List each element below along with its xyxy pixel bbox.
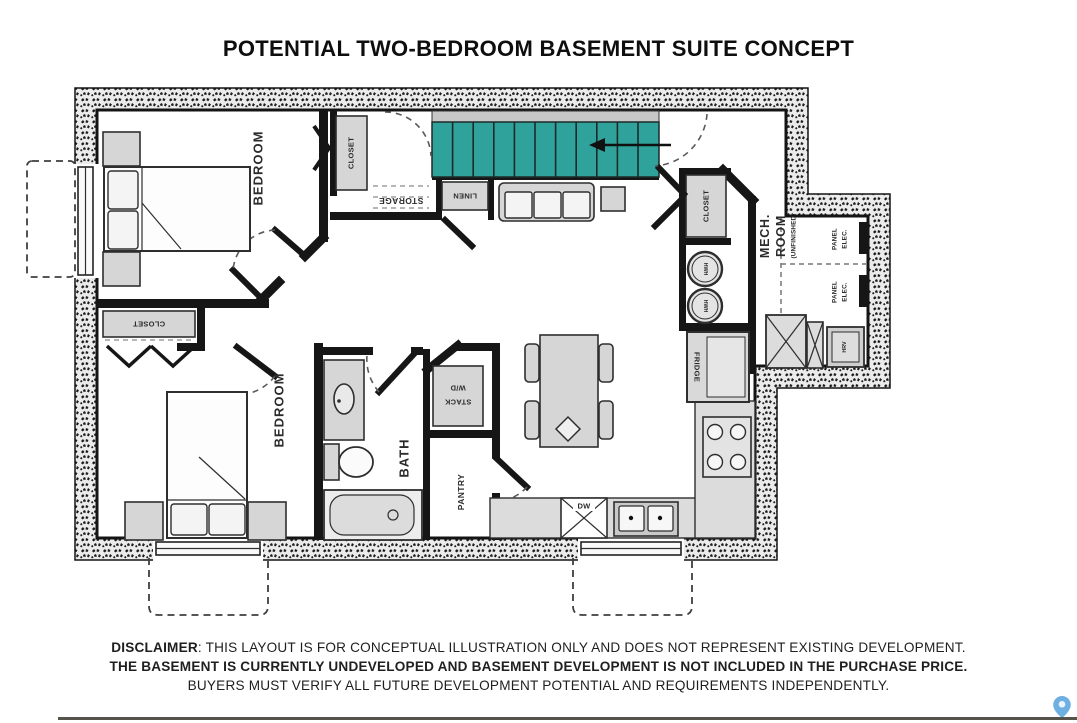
- panel-elec-label-line1: PANEL: [832, 228, 839, 250]
- disclaimer-line1: DISCLAIMER: THIS LAYOUT IS FOR CONCEPTUA…: [0, 640, 1077, 655]
- chair: [525, 344, 539, 382]
- bath-label: BATH: [397, 438, 412, 477]
- chair: [525, 401, 539, 439]
- pillow: [108, 171, 138, 209]
- bedroom1-door-leaf2: [233, 270, 261, 298]
- bedroom1-door-leaf: [275, 230, 305, 256]
- stair-landing-door-arc: [655, 114, 707, 166]
- electrical-panel: [859, 222, 869, 254]
- linen-closet: LINEN: [442, 182, 488, 246]
- closet1-label: CLOSET: [347, 137, 356, 169]
- hrv-label: HRV: [842, 341, 848, 353]
- staircase: [432, 111, 671, 177]
- closet2-label: CLOSET: [133, 320, 165, 329]
- closet-between-bedrooms: CLOSET: [103, 311, 195, 366]
- window-well-left: [27, 161, 75, 277]
- pillow: [209, 504, 245, 535]
- pillow: [171, 504, 207, 535]
- map-pin-icon: [1053, 696, 1071, 718]
- burner: [731, 455, 746, 470]
- chair: [599, 344, 613, 382]
- bath-door-arc: [367, 355, 379, 392]
- storage-label: STORAGE: [379, 196, 424, 206]
- sofa-cushion: [534, 192, 561, 218]
- panel-elec-label-line1: PANEL: [832, 281, 839, 303]
- window-left: [27, 161, 99, 278]
- disclaimer-word: DISCLAIMER: [111, 640, 198, 655]
- living-room-furniture: [499, 183, 625, 221]
- floor-plan: CLOSET STORAGE LINEN CLOSET CLOSET: [0, 78, 1077, 634]
- linen-door-leaf: [445, 220, 472, 246]
- pillow: [108, 211, 138, 249]
- panel-elec-label-line2: ELEC.: [842, 282, 849, 302]
- burner: [708, 455, 723, 470]
- burner: [731, 425, 746, 440]
- stack-wd-label-line1: STACK: [444, 398, 471, 407]
- storage-door-arc: [385, 112, 431, 156]
- nightstand: [103, 132, 140, 166]
- stack-wd-label-line2: W/D: [450, 384, 466, 393]
- closet-mech: CLOSET: [686, 175, 726, 237]
- nightstand: [125, 502, 163, 540]
- window-bedroom2: [149, 536, 268, 615]
- mech-room-door-leaf: [655, 200, 681, 226]
- floor-plan-drawing: CLOSET STORAGE LINEN CLOSET CLOSET: [0, 78, 1077, 634]
- storage-room: STORAGE: [373, 112, 431, 208]
- disclaimer-line3: BUYERS MUST VERIFY ALL FUTURE DEVELOPMEN…: [0, 678, 1077, 693]
- nightstand: [103, 252, 140, 286]
- burner: [708, 425, 723, 440]
- toilet-bowl: [339, 447, 373, 477]
- disclaimer-line2: THE BASEMENT IS CURRENTLY UNDEVELOPED AN…: [0, 659, 1077, 674]
- stack-washer-dryer: W/D STACK: [433, 366, 483, 426]
- disclaimer-line1-text: : THIS LAYOUT IS FOR CONCEPTUAL ILLUSTRA…: [198, 640, 966, 655]
- chair: [599, 401, 613, 439]
- bath-door-leaf: [379, 353, 415, 392]
- pantry-label: PANTRY: [456, 474, 466, 510]
- fridge-label: FRIDGE: [693, 352, 702, 382]
- hwh-label: HWH: [702, 263, 708, 276]
- stair-treads: [432, 122, 659, 177]
- floor-plan-page: { "title": "POTENTIAL TWO-BEDROOM BASEME…: [0, 0, 1077, 720]
- closet2-bifold-left: [107, 346, 151, 366]
- closet3-label: CLOSET: [702, 190, 711, 222]
- mech-room-label-line2: ROOM: [774, 215, 788, 257]
- window-well-kitchen: [573, 558, 692, 615]
- dining-set: [525, 335, 613, 447]
- panel-elec-label-line2: ELEC.: [842, 229, 849, 249]
- hwh-label: HWH: [702, 300, 708, 313]
- bedroom1-label: BEDROOM: [251, 131, 266, 206]
- mech-room-note: (UNFINISHED): [791, 213, 798, 258]
- nightstand: [248, 502, 286, 540]
- window-kitchen: [573, 536, 692, 615]
- bedroom2-door-leaf: [237, 347, 275, 376]
- bedroom2-label: BEDROOM: [272, 373, 287, 448]
- vanity-sink: [334, 384, 354, 414]
- bedroom2-furniture: [125, 392, 286, 540]
- window-well-bedroom2: [149, 558, 268, 615]
- toilet-tank: [324, 444, 339, 480]
- pantry-door-leaf: [496, 458, 527, 487]
- dishwasher-label: DW: [577, 502, 591, 511]
- page-title: POTENTIAL TWO-BEDROOM BASEMENT SUITE CON…: [0, 36, 1077, 62]
- sofa-cushion: [505, 192, 532, 218]
- bedroom1-furniture: [103, 132, 250, 286]
- electrical-panel: [859, 275, 869, 307]
- linen-label: LINEN: [453, 192, 477, 201]
- sofa-cushion: [563, 192, 590, 218]
- side-table: [601, 187, 625, 211]
- mech-room-label-line1: MECH.: [758, 214, 772, 258]
